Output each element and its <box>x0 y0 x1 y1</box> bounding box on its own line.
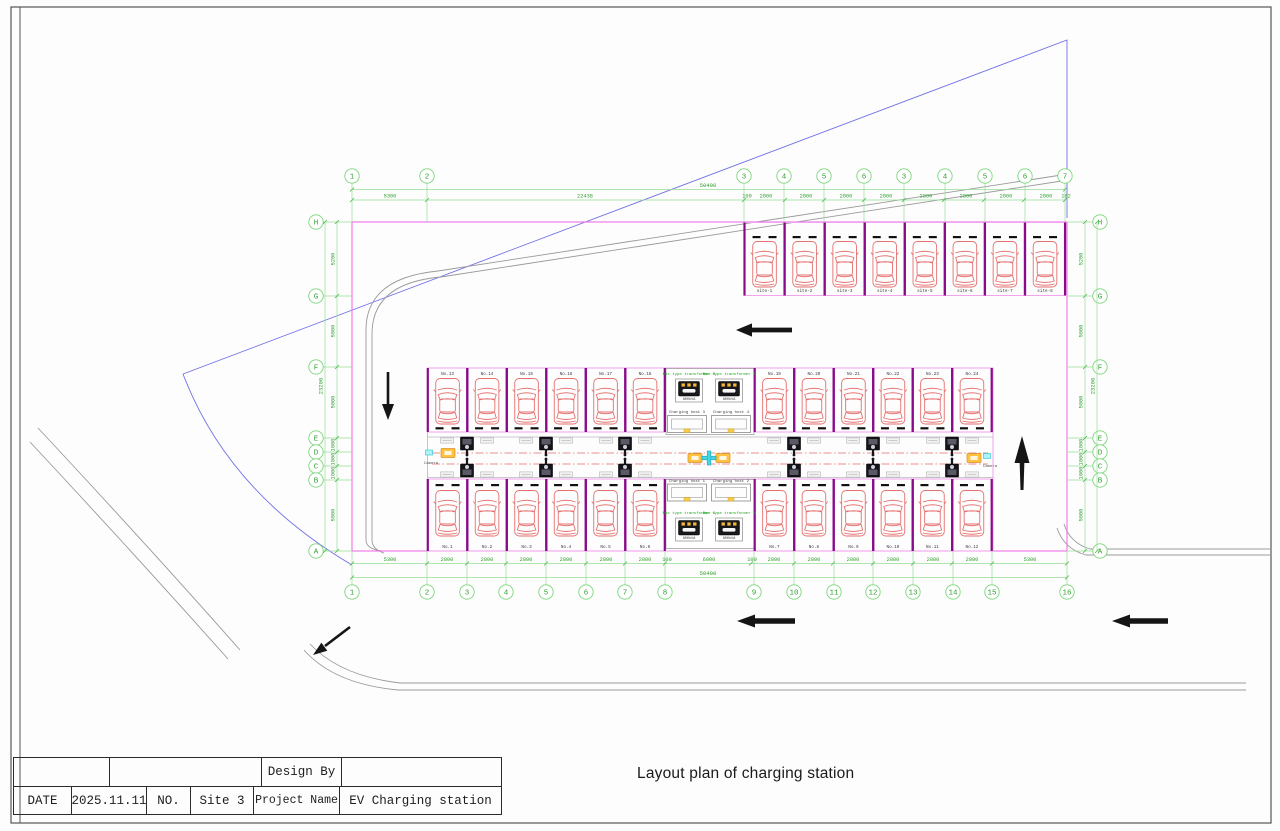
charging-host <box>712 416 751 433</box>
date-value: 2025.11.11 <box>71 787 146 814</box>
dim-tag <box>600 438 613 443</box>
car <box>879 379 907 425</box>
car <box>513 491 541 537</box>
grid-bubble-label: 11 <box>829 590 839 598</box>
wheel-stop <box>881 427 889 429</box>
dim-tag <box>600 472 613 477</box>
grid-bubble-label: 10 <box>789 590 799 598</box>
wheel-stop <box>1009 236 1017 238</box>
dim-text: 2800 <box>920 194 933 200</box>
wheel-stop <box>873 236 881 238</box>
flow-arrow-up-east <box>1020 458 1025 490</box>
wheel-stop <box>531 484 539 486</box>
ev-charger <box>867 458 880 477</box>
wheel-stop <box>570 484 578 486</box>
wheel-stop <box>849 236 857 238</box>
ev-charger <box>867 437 880 456</box>
dim-tag <box>887 472 900 477</box>
grid-bubble-label: 6 <box>584 590 589 598</box>
ev-charger <box>540 437 553 456</box>
wheel-stop <box>976 427 984 429</box>
wheel-stop <box>610 484 618 486</box>
dim-text: 1000 <box>1079 467 1085 480</box>
wheel-stop <box>436 427 444 429</box>
car <box>513 379 541 425</box>
dim-text: 2800 <box>887 557 900 563</box>
car <box>800 491 828 537</box>
wheel-stop <box>633 427 641 429</box>
wheel-stop <box>762 427 770 429</box>
grid-bubble-label: B <box>314 478 319 486</box>
ev-charger <box>946 458 959 477</box>
charging-host <box>668 416 707 433</box>
stall-label: site-3 <box>837 289 853 294</box>
stall-label: No.12 <box>965 545 978 550</box>
charging-host <box>668 484 707 501</box>
dim-text: 2800 <box>1000 194 1013 200</box>
dim-text: 2800 <box>800 194 813 200</box>
grid-bubble-label: 1 <box>350 174 355 182</box>
wheel-stop <box>802 427 810 429</box>
dim-text: 2800 <box>520 557 533 563</box>
wheel-stop <box>1033 236 1041 238</box>
dim-tag <box>927 438 940 443</box>
car <box>631 379 659 425</box>
dim-tag <box>639 472 652 477</box>
stall-label: site-1 <box>757 289 773 294</box>
wheel-stop <box>993 236 1001 238</box>
title-block-empty-cell <box>109 758 261 786</box>
car <box>840 491 868 537</box>
wheel-stop <box>897 427 905 429</box>
car <box>761 491 789 537</box>
wheel-stop <box>913 236 921 238</box>
project-name-label: Project Name <box>253 787 339 814</box>
flow-arrow-down-west <box>382 372 394 420</box>
grid-bubble-label: 3 <box>742 174 747 182</box>
car <box>919 379 947 425</box>
dim-total-left: 23200 <box>318 377 325 394</box>
dim-text: 2800 <box>808 557 821 563</box>
dim-text: 100 <box>742 194 752 200</box>
dim-text: 2800 <box>768 557 781 563</box>
grid-bubble-label: 1 <box>350 590 355 598</box>
ev-charger <box>946 437 959 456</box>
wheel-stop <box>936 427 944 429</box>
stall-label: No.22 <box>886 372 899 377</box>
wheel-stop <box>554 484 562 486</box>
grid-bubble-label: 5 <box>983 174 988 182</box>
dim-tag <box>481 438 494 443</box>
ev-charger <box>788 437 801 456</box>
car <box>473 491 501 537</box>
car <box>840 379 868 425</box>
transformer-rating: 800kVA <box>683 397 697 402</box>
wheel-stop <box>841 484 849 486</box>
dim-text: 2800 <box>441 557 454 563</box>
page-border <box>11 7 1271 823</box>
stall-label: No.14 <box>481 372 494 377</box>
flow-arrow-left-southeast <box>1112 615 1168 628</box>
wheel-stop <box>1049 236 1057 238</box>
car <box>958 379 986 425</box>
dim-text: 5000 <box>1079 325 1085 338</box>
dim-tag <box>520 438 533 443</box>
dim-text: 5300 <box>1024 557 1037 563</box>
wheel-stop <box>452 427 460 429</box>
grid-bubble-label: 2 <box>425 590 430 598</box>
dim-text: 2800 <box>1040 194 1053 200</box>
grid-bubble-label: B <box>1098 478 1103 486</box>
stall-label: No.2 <box>482 545 493 550</box>
car <box>879 491 907 537</box>
wheel-stop <box>554 427 562 429</box>
dim-text: 5300 <box>384 557 397 563</box>
grid-bubble-label: F <box>1098 365 1103 373</box>
dim-text: 5000 <box>331 396 337 409</box>
grid-bubble-label: A <box>314 549 319 557</box>
car <box>434 491 462 537</box>
wheel-stop <box>531 427 539 429</box>
transformer-rating: 800kVA <box>723 536 737 541</box>
wheel-stop <box>818 427 826 429</box>
dim-text: 5000 <box>331 509 337 522</box>
dim-text: 100 <box>662 557 672 563</box>
grid-bubble-label: G <box>314 294 319 302</box>
grid-bubble-label: C <box>314 464 319 472</box>
wheel-stop <box>753 236 761 238</box>
wheel-stop <box>570 427 578 429</box>
stall-label: No.15 <box>520 372 533 377</box>
dim-total-bottom: 50400 <box>700 570 717 577</box>
car <box>631 491 659 537</box>
wheel-stop <box>809 236 817 238</box>
wheel-stop <box>594 484 602 486</box>
transformer-label: Box type transformer 2 <box>703 511 756 516</box>
wheel-stop <box>475 484 483 486</box>
stall-label: site-2 <box>797 289 813 294</box>
grid-bubble-label: 4 <box>782 174 787 182</box>
camera-icon <box>426 450 433 455</box>
stall-label: No.10 <box>886 545 899 550</box>
dim-text: 6000 <box>703 557 716 563</box>
title-block-row-2: DATE 2025.11.11 NO. Site 3 Project Name … <box>14 786 501 814</box>
dim-text: 5300 <box>384 194 397 200</box>
road-south <box>304 650 1246 690</box>
stall-label: No.21 <box>847 372 860 377</box>
dim-text: 1000 <box>1079 439 1085 452</box>
stall-label: No.16 <box>560 372 573 377</box>
grid-bubble-label: H <box>314 220 319 228</box>
wheel-stop <box>436 484 444 486</box>
stall-label: No.17 <box>599 372 612 377</box>
lane-marker-orange <box>688 454 702 463</box>
dim-tag <box>966 472 979 477</box>
grid-bubble-label: 13 <box>908 590 918 598</box>
stall-label: No.5 <box>600 545 611 550</box>
wheel-stop <box>960 427 968 429</box>
car <box>958 491 986 537</box>
dim-tag <box>808 438 821 443</box>
wheel-stop <box>920 427 928 429</box>
wheel-stop <box>960 484 968 486</box>
grid-bubble-label: D <box>314 450 319 458</box>
dim-text: 2800 <box>966 557 979 563</box>
stall-label: No.11 <box>926 545 939 550</box>
dim-tag <box>808 472 821 477</box>
road-south <box>310 644 1246 683</box>
dim-text: 5200 <box>331 253 337 266</box>
wheel-stop <box>976 484 984 486</box>
dim-text: 5000 <box>1079 509 1085 522</box>
wheel-stop <box>594 427 602 429</box>
flow-arrow-left-south <box>737 615 795 628</box>
dim-tag <box>966 438 979 443</box>
grid-bubble-label: 6 <box>862 174 867 182</box>
project-name-value: EV Charging station <box>339 787 501 814</box>
camera-icon <box>984 454 991 459</box>
dim-text: 2800 <box>600 557 613 563</box>
stall-label: No.20 <box>807 372 820 377</box>
dim-text: 1000 <box>1079 453 1085 466</box>
wheel-stop <box>515 427 523 429</box>
charging-host <box>712 484 751 501</box>
wheel-stop <box>969 236 977 238</box>
dim-text: 162 <box>1061 194 1071 200</box>
grid-bubble-label: C <box>1098 464 1103 472</box>
dim-tag <box>639 438 652 443</box>
dim-text: 22438 <box>577 194 593 200</box>
ev-charger <box>619 458 632 477</box>
dim-text: 2800 <box>760 194 773 200</box>
dim-total-top: 50400 <box>700 182 717 189</box>
stall-label: No.13 <box>441 372 454 377</box>
car <box>592 491 620 537</box>
wheel-stop <box>649 427 657 429</box>
wheel-stop <box>857 484 865 486</box>
car <box>473 379 501 425</box>
grid-bubble-label: 2 <box>425 174 430 182</box>
grid-bubble-label: 7 <box>1063 174 1068 182</box>
dim-total-right: 23200 <box>1090 377 1097 394</box>
grid-bubble-label: 5 <box>822 174 827 182</box>
wheel-stop <box>881 484 889 486</box>
design-by-label: Design By <box>261 758 341 786</box>
stall-label: site-4 <box>877 289 893 294</box>
wheel-stop <box>953 236 961 238</box>
dim-text: 5000 <box>331 325 337 338</box>
stall-label: site-8 <box>1037 289 1053 294</box>
title-block-empty-cell <box>14 758 109 786</box>
wheel-stop <box>897 484 905 486</box>
dim-text: 2800 <box>927 557 940 563</box>
site-value: Site 3 <box>190 787 253 814</box>
grid-bubble-label: 3 <box>902 174 907 182</box>
dim-tag <box>768 472 781 477</box>
stall-label: No.3 <box>521 545 532 550</box>
dim-tag <box>847 438 860 443</box>
road-southwest-arc <box>30 442 228 659</box>
wheel-stop <box>818 484 826 486</box>
wheel-stop <box>929 236 937 238</box>
stall-label: site-5 <box>917 289 933 294</box>
grid-bubble-label: 8 <box>663 590 668 598</box>
stall-label: No.4 <box>561 545 572 550</box>
car <box>991 242 1019 288</box>
charging-host-label: Charging host 2 <box>713 479 750 484</box>
stall-label: No.9 <box>848 545 859 550</box>
lane-marker-orange <box>967 454 981 463</box>
dim-text: 2800 <box>481 557 494 563</box>
stall-label: No.6 <box>640 545 651 550</box>
dim-text: 1000 <box>331 453 337 466</box>
wheel-stop <box>793 236 801 238</box>
wheel-stop <box>452 484 460 486</box>
car <box>919 491 947 537</box>
car <box>800 379 828 425</box>
dim-text: 100 <box>747 557 757 563</box>
wheel-stop <box>889 236 897 238</box>
wheel-stop <box>649 484 657 486</box>
charging-host-label: Charging host 1 <box>669 479 706 484</box>
wheel-stop <box>762 484 770 486</box>
car <box>1031 242 1059 288</box>
stall-label: No.23 <box>926 372 939 377</box>
grid-bubble-label: E <box>1098 436 1103 444</box>
dim-text: 5200 <box>1079 253 1085 266</box>
wheel-stop <box>833 236 841 238</box>
grid-bubble-label: 12 <box>868 590 877 598</box>
dim-text: 1000 <box>331 439 337 452</box>
wheel-stop <box>491 427 499 429</box>
wheel-stop <box>491 484 499 486</box>
ev-charger <box>788 458 801 477</box>
car <box>871 242 899 288</box>
dim-text: 5000 <box>1079 396 1085 409</box>
road-west-hook <box>366 540 382 551</box>
camera-label: Camera <box>983 464 998 469</box>
stall-label: No.19 <box>768 372 781 377</box>
ev-charger <box>540 458 553 477</box>
car <box>434 379 462 425</box>
flow-arrow-diagonal-exit-shaft <box>325 627 350 646</box>
car <box>552 379 580 425</box>
stall-label: site-6 <box>957 289 973 294</box>
wheel-stop <box>515 484 523 486</box>
dim-tag <box>441 438 454 443</box>
grid-bubble-label: E <box>314 436 319 444</box>
grid-bubble-label: 4 <box>504 590 509 598</box>
grid-bubble-label: 9 <box>752 590 757 598</box>
grid-bubble-label: 15 <box>987 590 997 598</box>
car <box>592 379 620 425</box>
dim-text: 1000 <box>331 467 337 480</box>
lane-marker-orange <box>441 449 455 458</box>
dim-text: 2800 <box>560 557 573 563</box>
grid-bubble-label: G <box>1098 294 1103 302</box>
dim-tag <box>887 438 900 443</box>
grid-bubble-label: 4 <box>943 174 948 182</box>
grid-bubble-label: 16 <box>1062 590 1072 598</box>
plan-canvas: 1234563456712345678910111213141516HGFEDC… <box>0 0 1280 831</box>
transformer-rating: 800kVA <box>723 397 737 402</box>
ev-charger <box>461 437 474 456</box>
transformer-label: Box type transformer 4 <box>703 372 756 377</box>
wheel-stop <box>778 484 786 486</box>
dim-tag <box>768 438 781 443</box>
title-block-row-1: Design By <box>14 758 501 786</box>
wheel-stop <box>475 427 483 429</box>
dim-tag <box>927 472 940 477</box>
grid-bubble-label: F <box>314 365 319 373</box>
ev-charger <box>619 437 632 456</box>
dim-text: 2800 <box>847 557 860 563</box>
wheel-stop <box>769 236 777 238</box>
wheel-stop <box>857 427 865 429</box>
grid-bubble-label: 6 <box>1023 174 1028 182</box>
road-southwest-arc <box>38 428 240 650</box>
dim-text: 2800 <box>880 194 893 200</box>
design-by-value-cell <box>341 758 501 786</box>
charging-host-label: Charging host 3 <box>669 410 706 415</box>
wheel-stop <box>841 427 849 429</box>
wheel-stop <box>802 484 810 486</box>
stall-label: No.24 <box>965 372 978 377</box>
wheel-stop <box>936 484 944 486</box>
dim-tag <box>847 472 860 477</box>
grid-bubble-label: 3 <box>465 590 470 598</box>
stall-label: No.18 <box>639 372 652 377</box>
drawing-sheet: 1234563456712345678910111213141516HGFEDC… <box>0 0 1280 831</box>
wheel-stop <box>778 427 786 429</box>
grid-bubble-label: 5 <box>544 590 549 598</box>
car <box>831 242 859 288</box>
date-label: DATE <box>14 787 71 814</box>
stall-label: No.7 <box>769 545 780 550</box>
drawing-title: Layout plan of charging station <box>637 765 854 783</box>
stall-label: No.8 <box>809 545 820 550</box>
camera-label: Camera <box>424 461 439 466</box>
dim-tag <box>560 438 573 443</box>
grid-bubble-label: 14 <box>948 590 958 598</box>
dim-tag <box>560 472 573 477</box>
transformer-rating: 800kVA <box>683 536 697 541</box>
car <box>751 242 779 288</box>
grid-bubble-label: D <box>1098 450 1103 458</box>
car <box>791 242 819 288</box>
car <box>552 491 580 537</box>
wheel-stop <box>633 484 641 486</box>
charging-host-label: Charging host 4 <box>713 410 750 415</box>
stall-label: site-7 <box>997 289 1013 294</box>
car <box>761 379 789 425</box>
dim-tag <box>520 472 533 477</box>
wheel-stop <box>610 427 618 429</box>
dim-text: 2800 <box>639 557 652 563</box>
dim-tag <box>441 472 454 477</box>
no-label: NO. <box>146 787 190 814</box>
grid-bubble-label: 7 <box>623 590 628 598</box>
car <box>911 242 939 288</box>
dim-tag <box>481 472 494 477</box>
flow-arrow-left-top <box>736 323 792 336</box>
ev-charger <box>461 458 474 477</box>
dim-text: 2800 <box>840 194 853 200</box>
stall-label: No.1 <box>442 545 453 550</box>
lane-marker-orange <box>716 454 730 463</box>
car <box>951 242 979 288</box>
dim-text: 2800 <box>960 194 973 200</box>
